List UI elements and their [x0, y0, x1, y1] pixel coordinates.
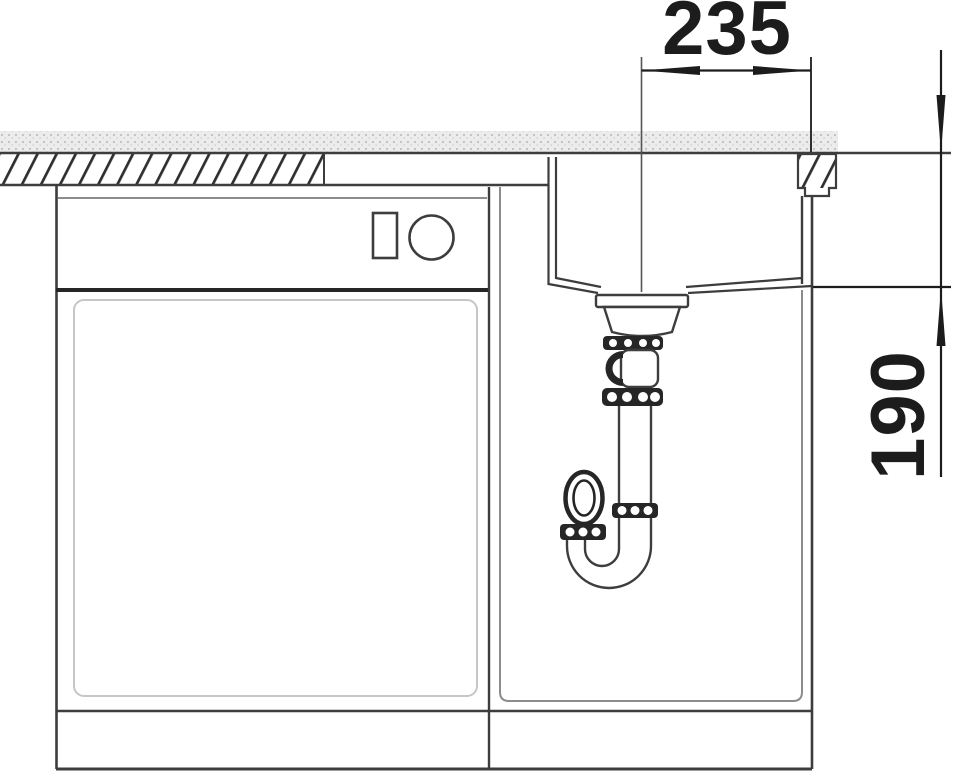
dimension-horizontal-label: 235 [662, 0, 792, 71]
dimension-vertical-label: 190 [856, 350, 941, 480]
outlet-collar [560, 524, 606, 540]
drain-elbow-body [621, 350, 658, 387]
trap-compression-nut [612, 503, 658, 518]
drain-knob-symbol [410, 216, 454, 260]
locking-ring-2 [602, 388, 663, 406]
installation-drawing-page: 235 190 [0, 0, 960, 775]
countertop-hatch-left [0, 154, 324, 184]
strainer-cup [604, 307, 680, 336]
strainer-flange [596, 295, 688, 307]
countertop-hatch-right [798, 154, 836, 188]
installation-cross-section-drawing: 235 190 [0, 0, 960, 775]
drawing-background [0, 0, 960, 775]
overflow-slot-symbol [373, 213, 397, 258]
sink-rim-clip [805, 188, 829, 196]
locking-ring-1 [603, 336, 663, 350]
countertop-surface-texture [0, 131, 838, 152]
